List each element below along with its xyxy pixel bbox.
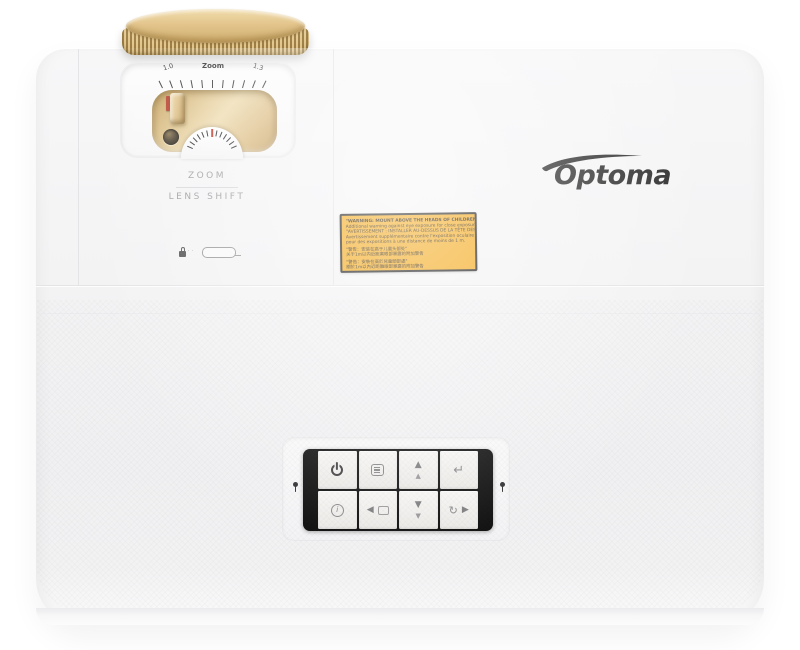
resync-icon: ↻ [449,504,458,517]
power-button[interactable] [318,451,357,489]
left-button[interactable]: ◀ [359,491,398,529]
warning-line: 关于1m以内近距离眼部暴露的附加警告 [346,251,475,258]
enter-button[interactable]: ↵ [440,451,479,489]
security-slot-tail [235,255,241,256]
down-arrows-icon: ▼ ▼ [415,501,422,520]
control-panel: ▲ ▲ ↵ i ◀ ▼ ▼ ↻ ▶ [303,449,493,531]
lens-shift-caption: LENS SHIFT [147,192,267,202]
warning-line: 關於1m以內近距離眼部暴露的附加警告 [346,263,475,270]
caption-divider [176,187,238,188]
zoom-scale-ticks [158,72,268,89]
temp-indicator-icon [499,482,506,493]
body-seam-front [36,285,764,286]
lever-knob [170,93,185,124]
product-photo-stage: 1.0 Zoom 1.3 ZOOM LENS SHIFT · · "WARNIN… [0,0,800,650]
down-button[interactable]: ▼ ▼ [399,491,438,529]
kensington-lock-icon: · · [179,245,239,259]
up-arrow-secondary-icon: ▲ [416,473,421,480]
body-seam-right [333,49,334,285]
lock-glyph-icon [179,247,186,257]
bottom-edge-bevel [36,608,764,625]
logo-text: Optoma [554,160,671,191]
lens-barrel-cap [126,9,305,43]
menu-icon [371,464,384,476]
power-icon [330,463,345,478]
resync-right-button[interactable]: ↻ ▶ [440,491,479,529]
lamp-indicator-icon [292,482,299,493]
lock-dots: · · [188,249,194,254]
down-arrow-icon: ▼ [415,501,422,510]
warning-label-text: "WARNING: MOUNT ABOVE THE HEADS OF CHILD… [346,217,476,270]
button-grid: ▲ ▲ ↵ i ◀ ▼ ▼ ↻ ▶ [318,451,478,529]
zoom-caption: ZOOM [147,171,267,181]
down-arrow-secondary-icon: ▼ [416,513,421,520]
info-button[interactable]: i [318,491,357,529]
warning-label: "WARNING: MOUNT ABOVE THE HEADS OF CHILD… [340,212,478,273]
power-stem [336,462,338,470]
enter-icon: ↵ [453,463,464,478]
right-arrow-icon: ▶ [462,506,469,515]
zoom-scale-label: Zoom [188,62,238,70]
optoma-logo: Optoma [540,152,690,198]
lock-body [179,251,186,257]
up-button[interactable]: ▲ ▲ [399,451,438,489]
body-seam-left [78,49,79,285]
body-seam-step [36,313,764,314]
left-arrow-icon: ◀ [367,506,374,515]
lens-shift-lever[interactable] [166,93,187,126]
plate-screw [163,129,179,145]
security-slot-outline [202,247,236,258]
up-arrow-icon: ▲ [415,461,422,470]
warning-line: Avertissement supplémentaire contre l'ex… [346,233,475,245]
menu-button[interactable] [359,451,398,489]
up-arrows-icon: ▲ ▲ [415,461,422,480]
info-icon: i [331,504,344,517]
keystone-box-icon [378,506,389,515]
